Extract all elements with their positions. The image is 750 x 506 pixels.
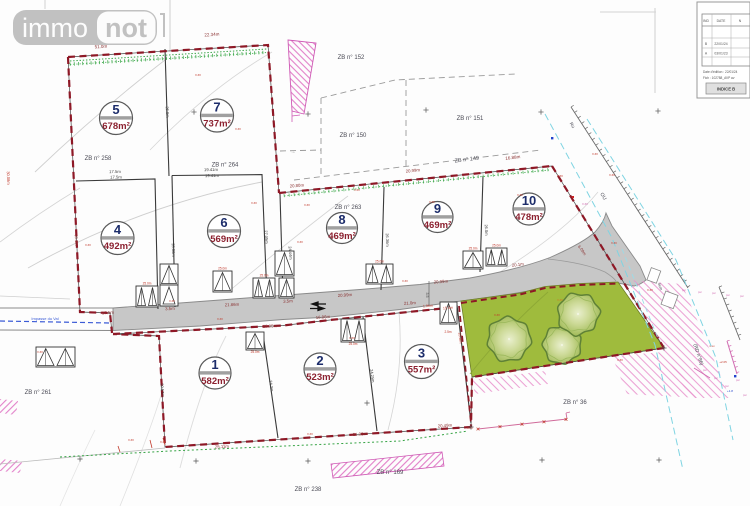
svg-text:x.xx: x.xx [617, 358, 623, 362]
svg-text:19.41m: 19.41m [204, 167, 219, 172]
svg-text:22/01/24: 22/01/24 [714, 42, 727, 46]
svg-text:25.0m: 25.0m [492, 244, 501, 248]
svg-text:3.5m: 3.5m [283, 298, 293, 304]
svg-text:8: 8 [338, 212, 345, 227]
svg-text:25.11m: 25.11m [215, 444, 230, 450]
svg-text:not: not [105, 13, 147, 43]
svg-text:27.05m: 27.05m [264, 230, 270, 244]
svg-text:20.99m: 20.99m [338, 292, 353, 298]
svg-text:21.86m: 21.86m [225, 302, 240, 308]
svg-text:x.xx: x.xx [304, 203, 310, 207]
svg-text:x.xx: x.xx [429, 200, 435, 204]
svg-text:1: 1 [211, 357, 218, 372]
svg-text:24.44m: 24.44m [288, 246, 294, 260]
svg-text:523m²: 523m² [306, 372, 333, 383]
svg-text:17.5m: 17.5m [109, 169, 121, 174]
svg-text:16.86m: 16.86m [316, 314, 331, 320]
svg-text:22.05m: 22.05m [263, 323, 278, 329]
svg-text:17.5m: 17.5m [102, 310, 115, 316]
svg-text:ZB n° 152: ZB n° 152 [338, 55, 365, 61]
svg-text:25.0m: 25.0m [260, 274, 269, 278]
svg-text:2.5m: 2.5m [444, 330, 451, 334]
svg-text:x.xx: x.xx [354, 188, 360, 192]
svg-text:1.96m: 1.96m [423, 304, 433, 309]
svg-text:10: 10 [522, 193, 536, 208]
svg-text:7: 7 [213, 100, 220, 115]
svg-text:x.xx: x.xx [349, 336, 355, 340]
svg-text:x.xx: x.xx [609, 173, 615, 177]
svg-text:x.xx: x.xx [217, 317, 223, 321]
svg-text:21.08m: 21.08m [353, 431, 368, 437]
svg-text:x.xx: x.xx [128, 438, 134, 442]
svg-text:9: 9 [434, 201, 441, 216]
svg-text:15.0m: 15.0m [443, 306, 453, 311]
svg-text:30.57m: 30.57m [160, 383, 166, 397]
svg-text:Date d'édition : 22/01/24: Date d'édition : 22/01/24 [703, 70, 738, 74]
svg-text:25.0m: 25.0m [143, 282, 152, 286]
svg-text:22.34m: 22.34m [204, 31, 220, 37]
svg-text:ZB n° 261: ZB n° 261 [25, 390, 52, 396]
svg-text:25.0m: 25.0m [251, 350, 260, 354]
svg-text:x.xx: x.xx [251, 201, 257, 205]
svg-text:immo: immo [22, 13, 88, 43]
svg-text:ZB n° 169: ZB n° 169 [377, 470, 404, 476]
svg-text:26.0m: 26.0m [484, 224, 489, 236]
svg-text:x.xx: x.xx [85, 243, 91, 247]
svg-text:Fich : 102788_AVP av: Fich : 102788_AVP av [703, 76, 735, 80]
svg-text:2: 2 [316, 353, 323, 368]
svg-text:5: 5 [112, 102, 119, 117]
svg-text:x.xx: x.xx [557, 174, 563, 178]
svg-text:DATE: DATE [717, 19, 727, 23]
svg-text:3.5: 3.5 [425, 293, 429, 298]
svg-text:3: 3 [418, 346, 425, 361]
svg-text:x.xx: x.xx [709, 344, 715, 348]
svg-text:ZB n° 258: ZB n° 258 [85, 156, 112, 162]
svg-text:+1.8: +1.8 [727, 389, 733, 393]
svg-text:x.xx: x.xx [611, 241, 617, 245]
svg-text:3.5m: 3.5m [165, 306, 175, 312]
svg-text:x.xx: x.xx [582, 202, 588, 206]
svg-text:x.xx: x.xx [160, 440, 166, 444]
svg-text:ZB n° 150: ZB n° 150 [340, 133, 367, 139]
svg-text:x.xx: x.xx [297, 240, 303, 244]
svg-text:x.xx: x.xx [592, 152, 598, 156]
svg-text:x.xx: x.xx [169, 299, 175, 303]
svg-text:x.xx: x.xx [647, 288, 653, 292]
svg-text:x.xx: x.xx [557, 298, 563, 302]
svg-text:20.49m: 20.49m [438, 422, 453, 428]
svg-text:INDICE B: INDICE B [717, 87, 735, 92]
svg-text:25.0m: 25.0m [469, 247, 478, 251]
svg-text:557m²: 557m² [408, 365, 435, 376]
svg-text:03/01/23: 03/01/23 [714, 52, 727, 56]
svg-text:582m²: 582m² [201, 376, 228, 387]
svg-text:478m²: 478m² [515, 212, 542, 223]
svg-text:ZB n° 151: ZB n° 151 [457, 116, 484, 122]
svg-text:4: 4 [114, 222, 122, 237]
svg-text:ZB n° 238: ZB n° 238 [295, 487, 322, 493]
svg-text:x.xx: x.xx [195, 73, 201, 77]
svg-text:569m²: 569m² [210, 234, 237, 245]
svg-text:Impasse du Val: Impasse du Val [31, 316, 58, 321]
svg-text:678m²: 678m² [102, 121, 129, 132]
svg-text:469m²: 469m² [424, 220, 451, 231]
svg-text:6: 6 [220, 215, 227, 230]
svg-text:26.0m: 26.0m [165, 106, 170, 118]
svg-text:x.xx: x.xx [235, 127, 241, 131]
svg-text:x.xx: x.xx [307, 432, 313, 436]
svg-text:21.0m: 21.0m [404, 300, 417, 306]
svg-text:492m²: 492m² [104, 241, 131, 252]
svg-text:+2.05: +2.05 [719, 360, 727, 364]
svg-text:30.0m: 30.0m [74, 234, 79, 246]
svg-text:→: → [291, 149, 296, 155]
svg-text:28.06m: 28.06m [171, 243, 176, 257]
svg-text:19.41m: 19.41m [205, 173, 220, 178]
svg-text:469m²: 469m² [328, 231, 355, 242]
svg-text:26.36m: 26.36m [385, 233, 390, 247]
svg-text:x.xx: x.xx [37, 350, 43, 354]
svg-text:x.xx: x.xx [517, 193, 523, 197]
svg-text:25.0m: 25.0m [218, 267, 227, 271]
svg-text:ZB n° 36: ZB n° 36 [563, 400, 587, 406]
svg-text:ZB n° 263: ZB n° 263 [335, 205, 362, 211]
svg-text:17.5m: 17.5m [110, 174, 122, 179]
svg-text:x.xx: x.xx [402, 279, 408, 283]
svg-text:IND: IND [703, 19, 709, 23]
svg-text:x.xx: x.xx [494, 313, 500, 317]
svg-text:25.0m: 25.0m [349, 342, 358, 346]
svg-text:30.08m: 30.08m [6, 171, 11, 185]
svg-text:x.xx: x.xx [467, 426, 473, 430]
svg-text:737m²: 737m² [203, 119, 230, 130]
svg-text:25.0m: 25.0m [375, 260, 384, 264]
